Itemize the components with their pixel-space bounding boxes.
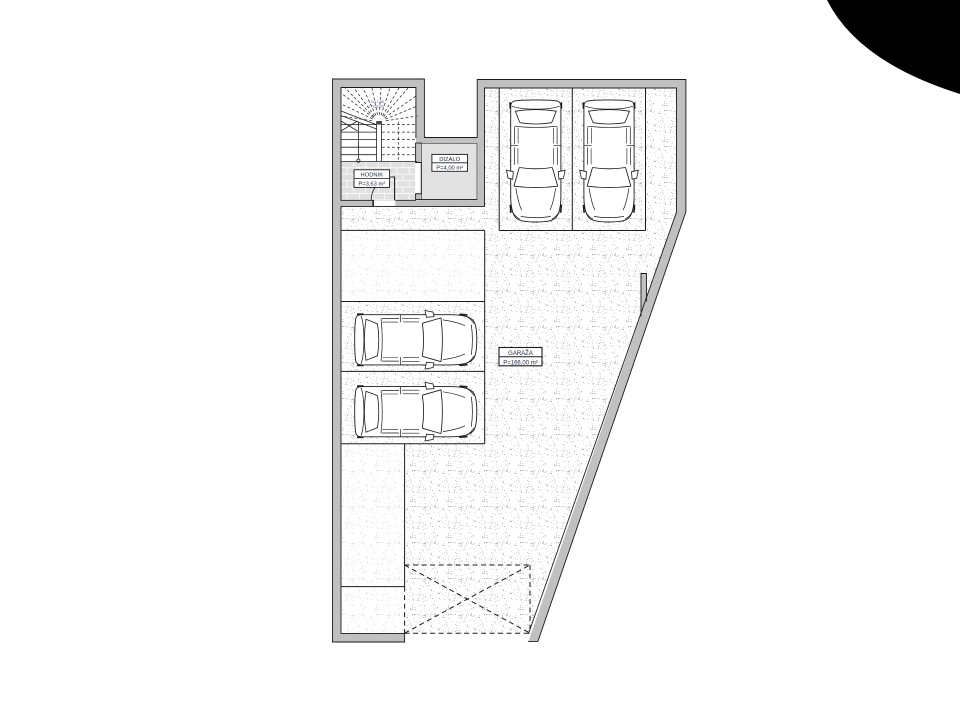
svg-text:17x17,65: 17x17,65: [368, 100, 384, 104]
svg-text:HODNIK: HODNIK: [361, 173, 384, 179]
svg-text:P=3,63 m²: P=3,63 m²: [358, 181, 385, 187]
svg-text:P=4,00 m²: P=4,00 m²: [436, 166, 463, 172]
svg-text:P=166,00 m²: P=166,00 m²: [503, 360, 538, 366]
svg-text:17x28,00: 17x28,00: [368, 105, 384, 109]
svg-text:DIZALO: DIZALO: [439, 157, 460, 163]
svg-text:GARAŽA: GARAŽA: [508, 349, 533, 357]
